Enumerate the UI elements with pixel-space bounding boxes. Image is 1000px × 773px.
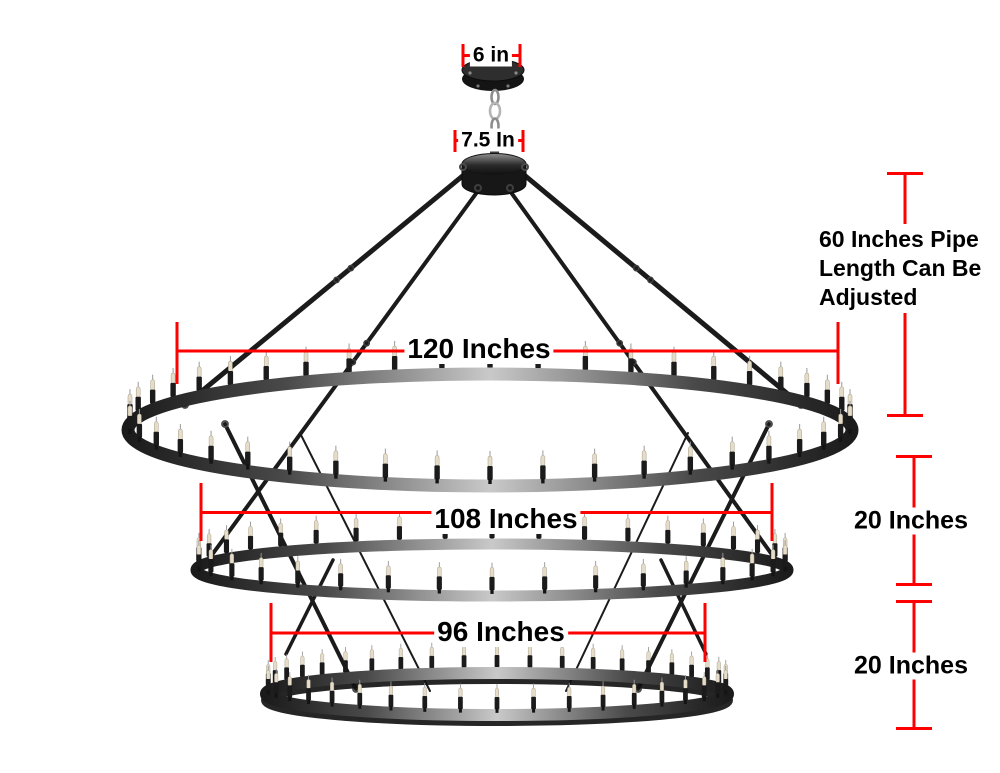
bottom-ring-diameter-label: 96 Inches: [434, 617, 568, 647]
chandelier-illustration: [0, 0, 1000, 773]
gap-middle-bottom-label: 20 Inches: [851, 653, 971, 680]
middle-ring-diameter-label: 108 Inches: [431, 504, 580, 534]
dimension-diagram-page: { "diagram": { "canopy_width_label": "6 …: [0, 0, 1000, 773]
central-hub: [460, 148, 528, 195]
canopy-width-label: 6 in: [470, 44, 512, 67]
hub-width-label: 7.5 In: [458, 129, 518, 152]
top-ring-diameter-label: 120 Inches: [404, 334, 553, 364]
gap-top-middle-label: 20 Inches: [851, 508, 971, 535]
ring-tier: [266, 642, 728, 721]
support-rods: [182, 169, 804, 692]
pipe-length-note: 60 Inches Pipe Length Can Be Adjusted: [817, 224, 1000, 313]
